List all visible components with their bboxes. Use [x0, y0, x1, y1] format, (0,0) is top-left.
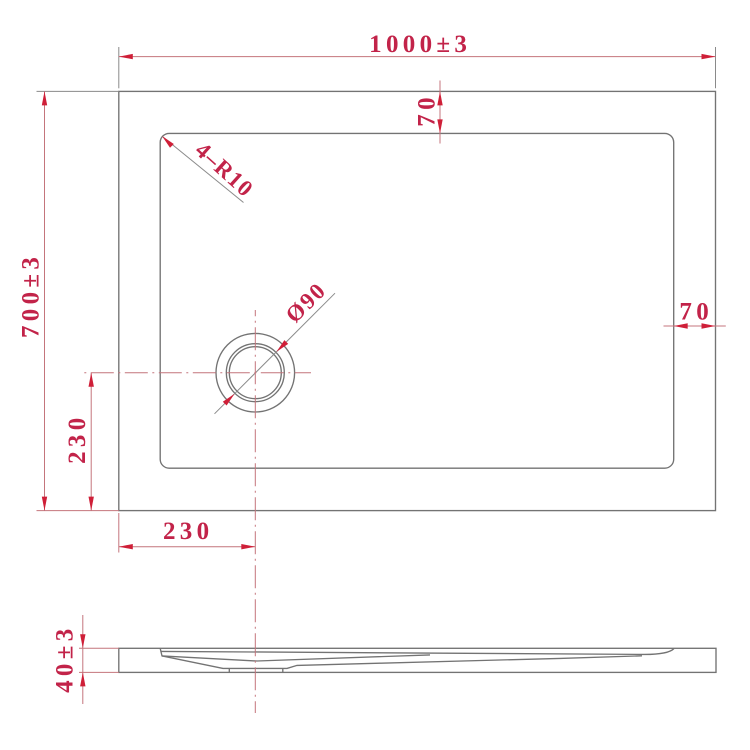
svg-text:230: 230	[163, 518, 213, 545]
svg-text:70: 70	[414, 93, 441, 127]
svg-text:40±3: 40±3	[52, 624, 79, 692]
svg-text:230: 230	[64, 413, 91, 463]
svg-text:1000±3: 1000±3	[369, 31, 471, 58]
svg-text:700±3: 700±3	[18, 253, 45, 338]
svg-text:70: 70	[679, 299, 713, 326]
